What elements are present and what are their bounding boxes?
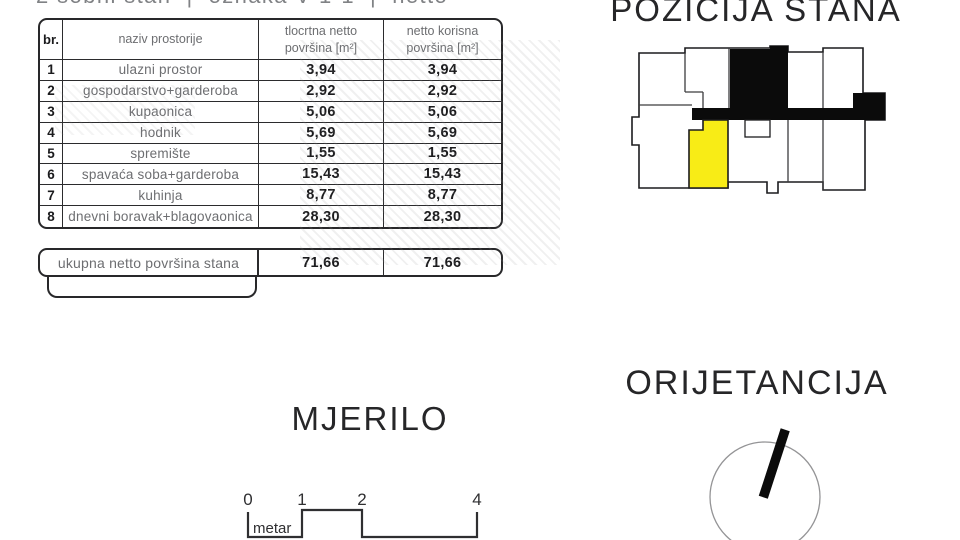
room-name: spremište <box>63 144 259 165</box>
row-number: 2 <box>40 81 63 102</box>
building-black-band <box>692 108 885 120</box>
room-name: gospodarstvo+garderoba <box>63 81 259 102</box>
room-name: kuhinja <box>63 185 259 206</box>
row-number: 3 <box>40 102 63 123</box>
header-net-usable-area-line1: netto korisna <box>406 23 478 39</box>
position-section-title: POZICIJA STANA <box>586 0 926 27</box>
room-name: ulazni prostor <box>63 60 259 81</box>
header-number: br. <box>40 20 63 60</box>
row-number: 8 <box>40 206 63 227</box>
header-floor-net-area-line2: površina [m²] <box>285 40 357 56</box>
area-value: 15,43 <box>384 164 501 185</box>
header-floor-net-area-line1: tlocrtna netto <box>285 23 357 39</box>
area-value: 15,43 <box>259 164 384 185</box>
room-name: hodnik <box>63 123 259 144</box>
building-position-plan <box>610 30 900 200</box>
scale-unit-label: metar <box>253 520 291 537</box>
area-value: 5,06 <box>384 102 501 123</box>
area-value: 2,92 <box>384 81 501 102</box>
compass-needle <box>759 428 790 498</box>
area-value: 1,55 <box>259 144 384 165</box>
header-net-usable-area-line2: površina [m²] <box>406 40 478 56</box>
small-core-box <box>745 120 770 137</box>
row-number: 1 <box>40 60 63 81</box>
highlighted-apartment-unit <box>689 120 728 188</box>
orientation-compass <box>700 420 840 540</box>
building-black-block <box>730 46 788 108</box>
building-black-right-block <box>853 93 885 108</box>
scale-tick-0: 0 <box>243 490 252 509</box>
row-number: 5 <box>40 144 63 165</box>
area-value: 5,69 <box>384 123 501 144</box>
area-value: 28,30 <box>384 206 501 227</box>
area-value: 28,30 <box>259 206 384 227</box>
page-caption: 2 sobni stan | oznaka V-1-1 | netto <box>36 0 596 7</box>
header-room-name: naziv prostorije <box>63 20 259 60</box>
scale-bar: 0 1 2 4 metar <box>230 480 510 540</box>
room-name: kupaonica <box>63 102 259 123</box>
row-number: 6 <box>40 164 63 185</box>
room-name: dnevni boravak+blagovaonica <box>63 206 259 227</box>
area-value: 2,92 <box>259 81 384 102</box>
total-area-value: 71,66 <box>384 250 501 275</box>
total-area-value: 71,66 <box>259 250 384 275</box>
row-number: 7 <box>40 185 63 206</box>
area-value: 8,77 <box>259 185 384 206</box>
scale-section-title: MJERILO <box>260 400 480 438</box>
area-value: 3,94 <box>384 60 501 81</box>
area-value: 1,55 <box>384 144 501 165</box>
scale-tick-4: 4 <box>472 490 481 509</box>
area-value: 8,77 <box>384 185 501 206</box>
scale-tick-2: 2 <box>357 490 366 509</box>
header-floor-net-area: tlocrtna nettopovršina [m²] <box>259 20 384 60</box>
area-value: 5,69 <box>259 123 384 144</box>
total-area-bar: ukupna netto površina stana 71,66 71,66 <box>38 248 503 277</box>
room-areas-table: br. naziv prostorije tlocrtna nettopovrš… <box>38 18 503 229</box>
row-number: 4 <box>40 123 63 144</box>
area-value: 5,06 <box>259 102 384 123</box>
signature-box <box>47 277 257 298</box>
orientation-section-title: ORIJETANCIJA <box>597 364 917 403</box>
scale-tick-1: 1 <box>297 490 306 509</box>
total-label: ukupna netto površina stana <box>40 250 259 275</box>
room-name: spavaća soba+garderoba <box>63 164 259 185</box>
header-net-usable-area: netto korisnapovršina [m²] <box>384 20 501 60</box>
area-value: 3,94 <box>259 60 384 81</box>
